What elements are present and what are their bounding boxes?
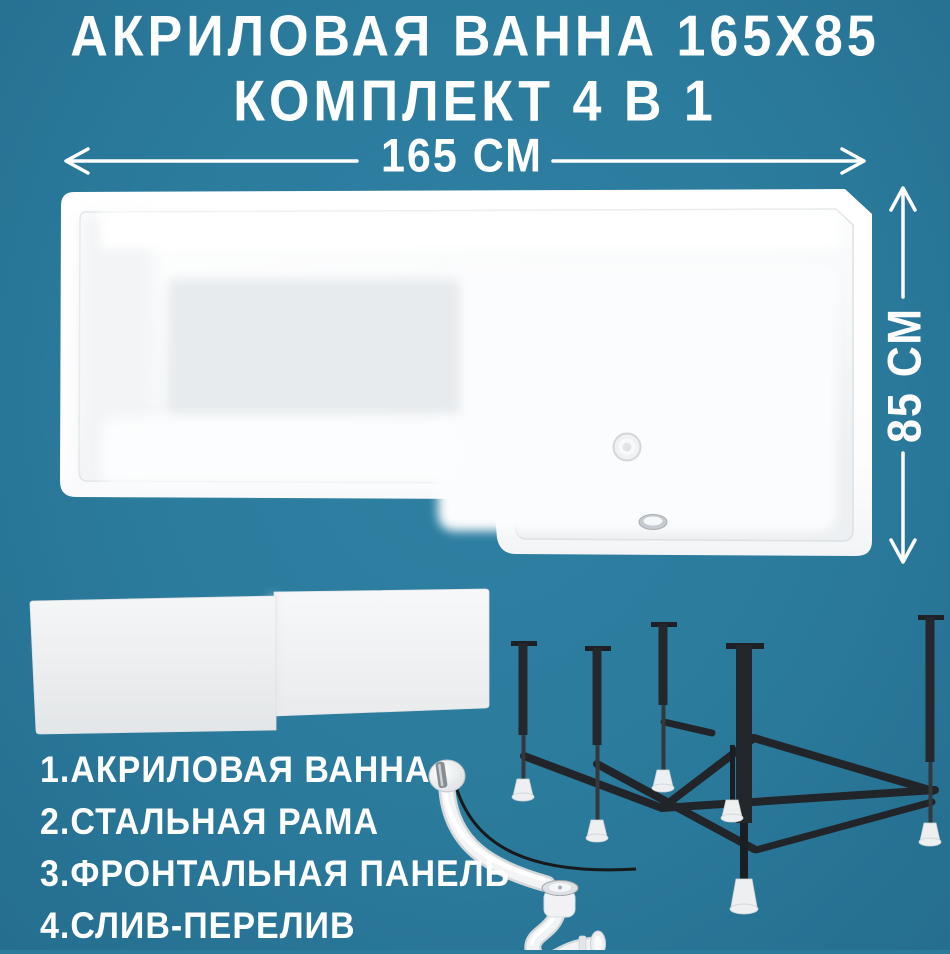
tub-right-floor: [438, 263, 836, 531]
tub-drain-hole: [614, 434, 641, 461]
tub-overflow-slot: [639, 515, 667, 530]
tub-left-floor: [168, 279, 460, 417]
parts-list-item-3: 3.ФРОНТАЛЬНАЯ ПАНЕЛЬ: [40, 846, 510, 902]
front-panel-left: [30, 596, 276, 734]
title-line-1: АКРИЛОВАЯ ВАННА 165Х85: [0, 4, 950, 70]
tub-seat-slope: [102, 417, 462, 485]
tub-top-wall-highlight: [100, 211, 840, 249]
product-card: АКРИЛОВАЯ ВАННА 165Х85 КОМПЛЕКТ 4 В 1 16…: [0, 0, 950, 950]
parts-list: 1.АКРИЛОВАЯ ВАННА 2.СТАЛЬНАЯ РАМА 3.ФРОН…: [40, 744, 510, 952]
front-panel-pair: [20, 580, 500, 755]
siphon-body: [542, 881, 578, 918]
title-line-2: КОМПЛЕКТ 4 В 1: [0, 69, 950, 135]
parts-list-item-2: 2.СТАЛЬНАЯ РАМА: [40, 794, 510, 850]
title: АКРИЛОВАЯ ВАННА 165Х85 КОМПЛЕКТ 4 В 1: [0, 4, 950, 129]
siphon-outlet-flange: [579, 931, 606, 950]
front-panel-right: [274, 589, 489, 716]
height-dimension-label: 85 СМ: [876, 265, 933, 485]
parts-list-item-4: 4.СЛИВ-ПЕРЕЛИВ: [40, 898, 510, 954]
parts-list-item-1: 1.АКРИЛОВАЯ ВАННА: [40, 742, 510, 798]
bathtub-top-view: [40, 175, 890, 585]
